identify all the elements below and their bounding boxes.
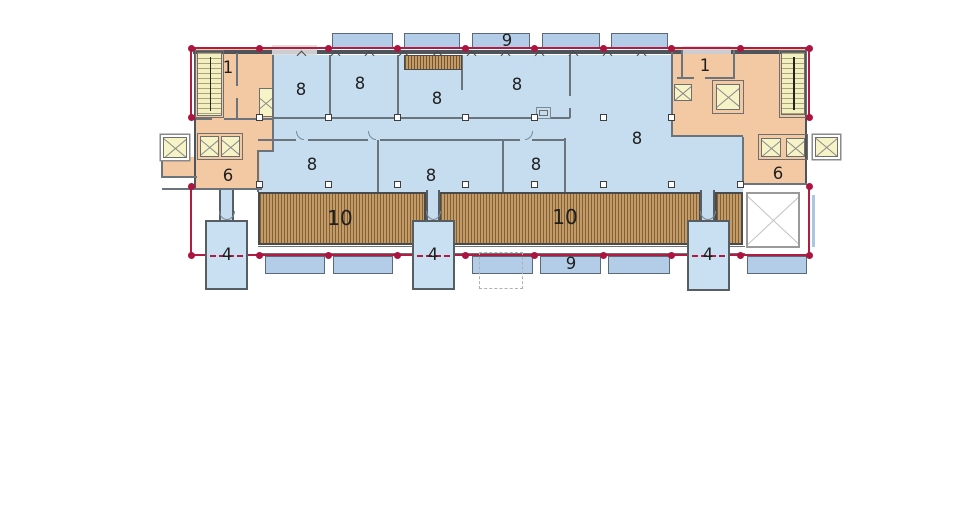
column-marker	[394, 114, 401, 121]
boundary-node	[325, 252, 332, 259]
wall-corridor-left-bottom	[162, 188, 262, 190]
wall-v-core-right	[671, 48, 673, 137]
elevator-icon	[221, 136, 240, 157]
boundary-node	[394, 252, 401, 259]
open-office-area	[274, 55, 672, 118]
balcony-bottom-6	[747, 256, 807, 274]
column-marker	[531, 114, 538, 121]
column-marker	[256, 181, 263, 188]
tower-label: 4	[222, 247, 233, 264]
boundary-node	[188, 183, 195, 190]
wall-v-6	[502, 140, 504, 192]
glass-railing	[812, 195, 815, 247]
boundary-node	[668, 45, 675, 52]
wall-v-5	[377, 140, 379, 192]
terrace-label-right: 10	[552, 207, 577, 227]
door-gap	[212, 118, 224, 120]
floor-plan: 1 1 8 8 8 8 8 8 8 8 6 6 10 10 4 4 4 9 9	[0, 0, 980, 531]
boundary-node	[325, 45, 332, 52]
boundary-node	[806, 183, 813, 190]
column-marker	[325, 114, 332, 121]
balcony-row-label-top: 9	[502, 33, 513, 50]
boundary-node	[806, 252, 813, 259]
boundary-node	[462, 252, 469, 259]
terrace-label-left: 10	[327, 208, 352, 228]
room-label-stair-left: 1	[223, 60, 234, 77]
column-marker	[600, 114, 607, 121]
room-label-8: 8	[432, 91, 443, 108]
boundary-line-right-upper	[808, 48, 810, 118]
boundary-node	[256, 252, 263, 259]
wall-v-4	[569, 55, 571, 118]
wall-room1r-c	[677, 77, 735, 79]
core-wing-left	[162, 157, 196, 176]
room-label-8: 8	[426, 168, 437, 185]
boundary-node	[668, 252, 675, 259]
open-void-shaft	[746, 192, 800, 248]
elevator-icon	[200, 136, 219, 157]
balcony-row-label-bottom: 9	[566, 256, 577, 273]
elevator-icon	[786, 138, 805, 157]
wall-v-7	[564, 138, 566, 192]
wall-v-corridor-right	[742, 137, 744, 185]
vent-shaft-hatch	[404, 55, 462, 70]
column-marker	[600, 181, 607, 188]
wall-v-1	[329, 55, 331, 118]
boundary-line-right-lower	[808, 186, 810, 256]
wall-wing-left-bottom	[161, 176, 197, 178]
wall-room1r-a	[681, 50, 683, 78]
boundary-node	[188, 114, 195, 121]
column-marker	[531, 181, 538, 188]
wall-jog-left	[257, 150, 274, 152]
balcony-bottom-2	[333, 256, 393, 274]
room-label-8: 8	[296, 82, 307, 99]
tower-label: 4	[703, 247, 714, 264]
boundary-node	[600, 252, 607, 259]
column-marker	[394, 181, 401, 188]
wall-corridor-right-bottom	[743, 183, 807, 185]
boundary-node	[256, 45, 263, 52]
elevator-icon-outer-left	[163, 137, 187, 158]
room-label-8: 8	[632, 131, 643, 148]
boundary-node	[462, 45, 469, 52]
door-gap	[569, 96, 571, 108]
column-marker	[462, 181, 469, 188]
boundary-node	[737, 45, 744, 52]
elevator-icon	[716, 84, 740, 110]
boundary-line-top	[191, 47, 809, 49]
column-marker	[737, 181, 744, 188]
boundary-node	[188, 45, 195, 52]
column-marker	[462, 114, 469, 121]
boundary-line-left-upper	[190, 48, 192, 118]
boundary-node	[531, 252, 538, 259]
balcony-bottom-1	[265, 256, 325, 274]
boundary-node	[806, 114, 813, 121]
boundary-node	[600, 45, 607, 52]
tower-label: 4	[428, 247, 439, 264]
column-marker	[668, 181, 675, 188]
shaft-right-icon	[674, 84, 692, 101]
boundary-line-left-lower	[190, 186, 192, 256]
boundary-node	[737, 252, 744, 259]
column-marker	[325, 181, 332, 188]
column-marker	[256, 114, 263, 121]
door-gap	[694, 77, 705, 79]
elevator-icon-outer-right	[815, 137, 838, 157]
stair-left	[197, 52, 222, 116]
hidden-edge-outline	[479, 252, 523, 289]
wall-room1r-b	[733, 50, 735, 78]
boundary-node	[531, 45, 538, 52]
dumbwaiter-inner	[539, 110, 548, 116]
boundary-node	[806, 45, 813, 52]
corridor-label-right: 6	[773, 166, 784, 183]
wall-h-core-right	[672, 135, 743, 137]
wall-wing-left	[161, 157, 163, 178]
wall-h-upper	[274, 117, 570, 119]
open-office-area-east	[672, 137, 743, 192]
room-label-8: 8	[307, 157, 318, 174]
wall-v-2	[397, 55, 399, 118]
balcony-bottom-5	[608, 256, 670, 274]
stair-right	[781, 52, 805, 115]
boundary-node	[188, 252, 195, 259]
door-gap	[236, 86, 238, 98]
elevator-icon	[761, 138, 781, 157]
room-label-8: 8	[531, 157, 542, 174]
room-label-8: 8	[512, 77, 523, 94]
boundary-node	[394, 45, 401, 52]
corridor-label-left: 6	[223, 168, 234, 185]
column-marker	[668, 114, 675, 121]
room-label-stair-right: 1	[700, 58, 711, 75]
room-label-8: 8	[355, 76, 366, 93]
